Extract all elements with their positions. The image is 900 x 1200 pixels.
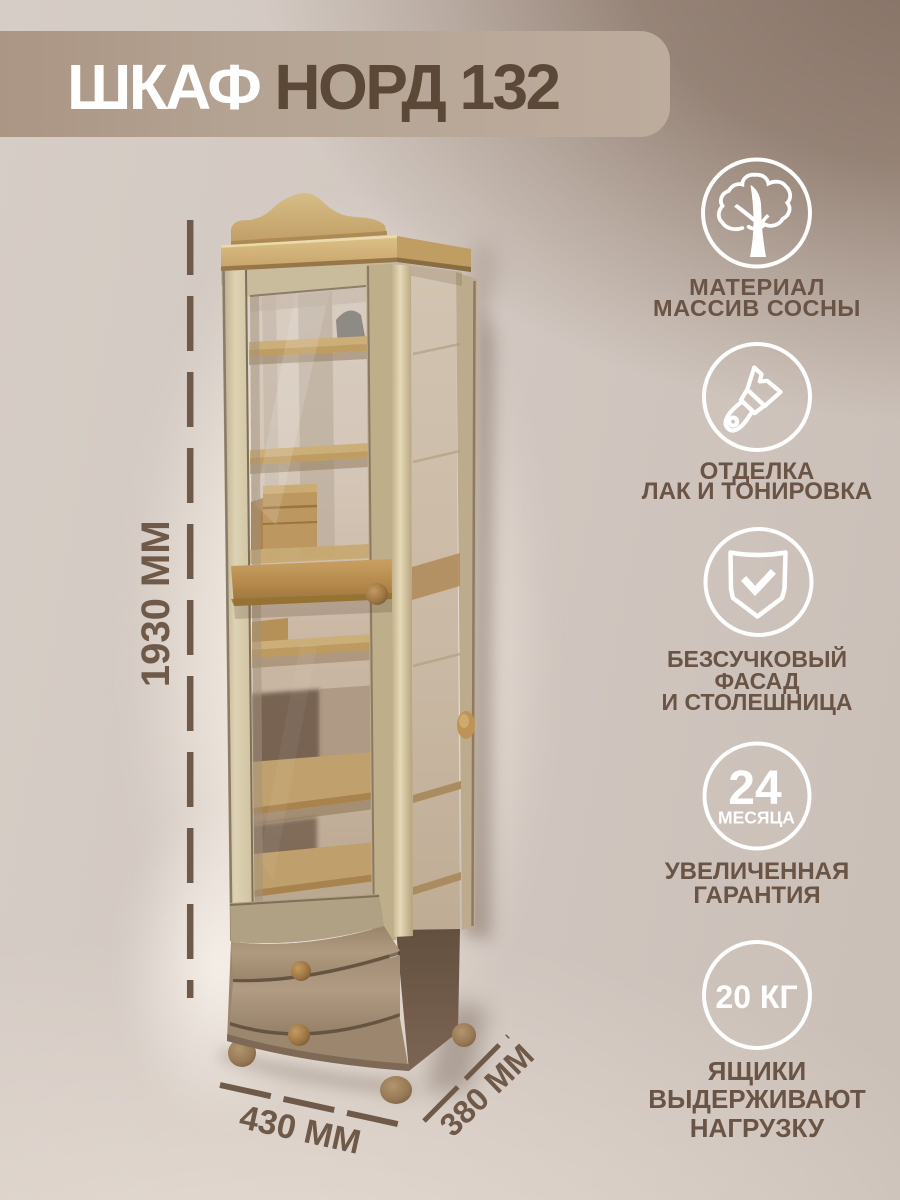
svg-text:МЕСЯЦА: МЕСЯЦА [718,808,795,828]
svg-text:20 КГ: 20 КГ [715,979,797,1015]
